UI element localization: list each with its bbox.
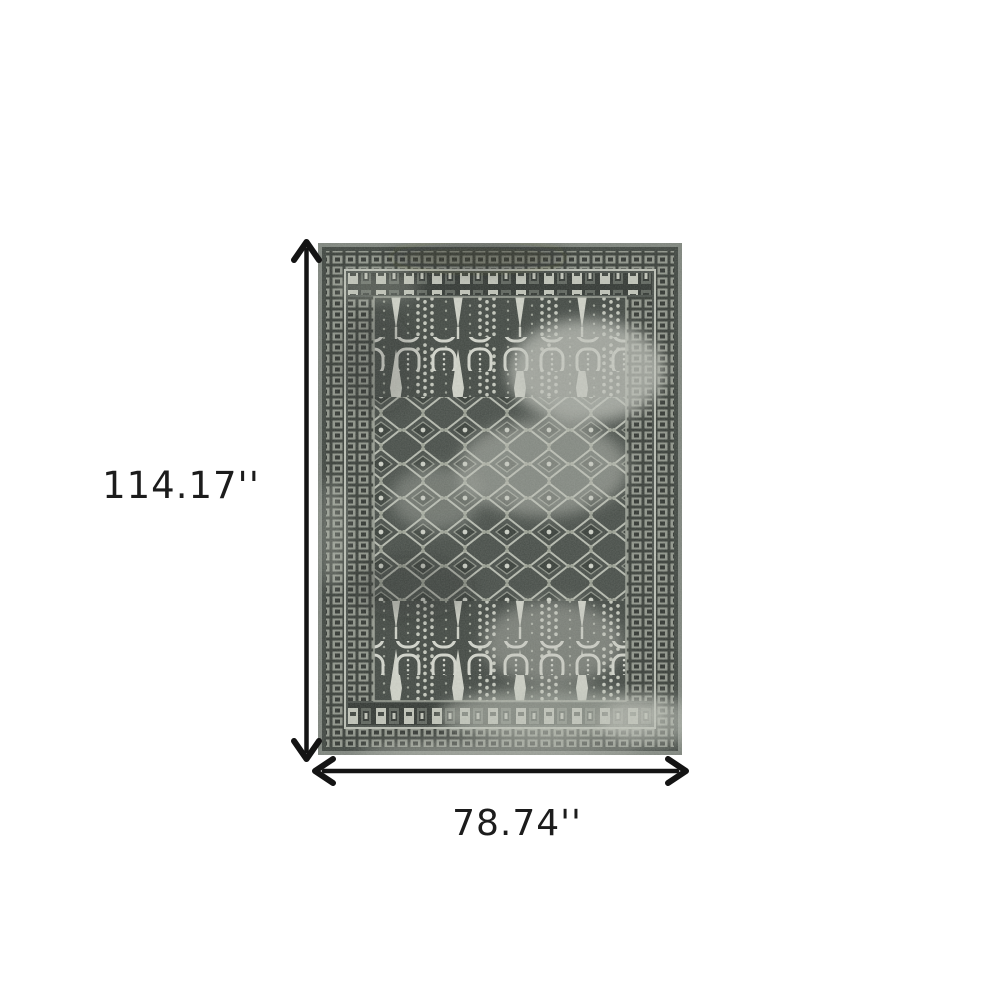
- dimension-diagram: 114.17'' 78.74'': [0, 0, 1000, 1000]
- rug-image: [318, 243, 682, 755]
- width-arrow-icon: [315, 759, 686, 783]
- width-dimension-label: 78.74'': [422, 803, 612, 844]
- height-arrow-icon: [294, 242, 319, 759]
- height-dimension-label: 114.17'': [86, 464, 276, 507]
